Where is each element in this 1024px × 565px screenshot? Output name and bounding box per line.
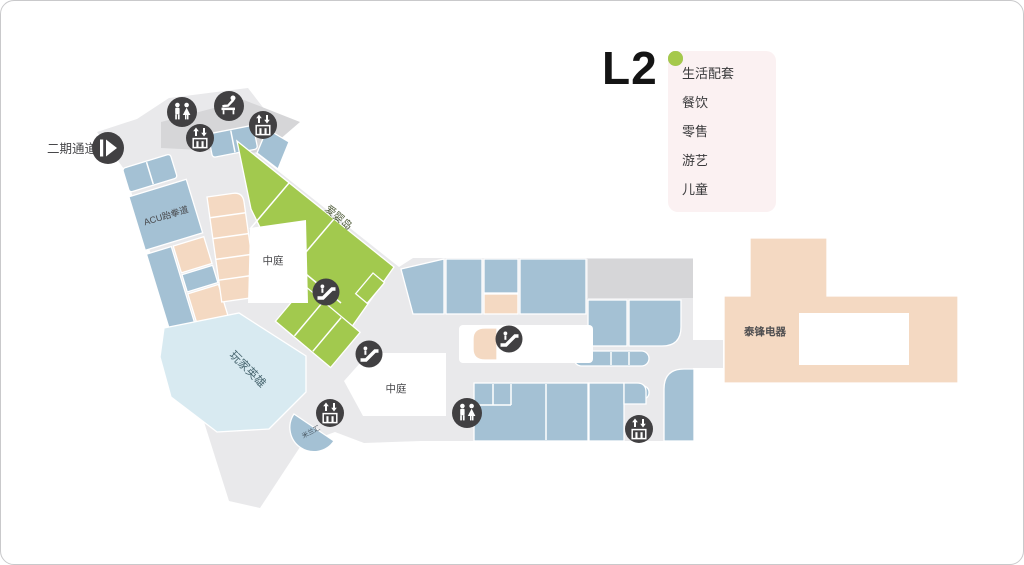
legend-label: 儿童 (682, 179, 708, 198)
legend-item-dining: 餐饮 (682, 92, 762, 111)
atrium-label: 中庭 (263, 254, 284, 267)
elevator-icon[interactable] (625, 415, 653, 443)
retail-block[interactable] (473, 328, 497, 360)
legend-panel: 生活配套 餐饮 零售 游艺 儿童 (668, 51, 776, 212)
legend-label: 游艺 (682, 150, 708, 169)
floor-title: L2 (602, 45, 658, 91)
restroom-icon[interactable] (452, 398, 482, 428)
atrium-label: 中庭 (386, 382, 407, 395)
escalator-icon[interactable] (356, 341, 383, 368)
restroom-icon[interactable] (167, 97, 197, 127)
service-block (588, 259, 693, 298)
baby-care-icon[interactable] (214, 91, 244, 121)
dining-block[interactable] (474, 383, 588, 441)
legend-item-retail: 零售 (682, 121, 762, 140)
floorplan: ACU跆拳道 (1, 1, 1023, 564)
dining-block[interactable] (629, 300, 681, 346)
legend-label: 生活配套 (682, 63, 734, 82)
legend-label: 零售 (682, 121, 708, 140)
dining-block[interactable] (484, 259, 518, 293)
entrance-label: 二期通道 (47, 142, 98, 156)
escalator-icon[interactable] (313, 279, 340, 306)
taifeng-label: 泰锋电器 (743, 325, 786, 338)
legend-item-life-services: 生活配套 (682, 63, 762, 82)
dining-block[interactable] (446, 259, 482, 314)
elevator-icon[interactable] (316, 399, 344, 427)
elevator-icon[interactable] (186, 124, 214, 152)
dining-block[interactable] (589, 383, 624, 441)
elevator-icon[interactable] (249, 111, 277, 139)
retail-block[interactable] (484, 294, 518, 314)
mall-directory-page: ACU跆拳道 (0, 0, 1024, 565)
legend-label: 餐饮 (682, 92, 708, 111)
legend-dot-kids (668, 51, 683, 66)
phase2-entrance-icon[interactable] (92, 132, 124, 164)
dining-block[interactable] (588, 300, 627, 346)
dining-block[interactable] (520, 259, 586, 314)
dining-block[interactable] (624, 383, 646, 404)
legend-item-kids: 儿童 (682, 179, 762, 198)
escalator-icon[interactable] (496, 326, 523, 353)
dining-block[interactable] (664, 369, 694, 441)
taifeng-void (799, 313, 909, 365)
legend-item-amusement: 游艺 (682, 150, 762, 169)
